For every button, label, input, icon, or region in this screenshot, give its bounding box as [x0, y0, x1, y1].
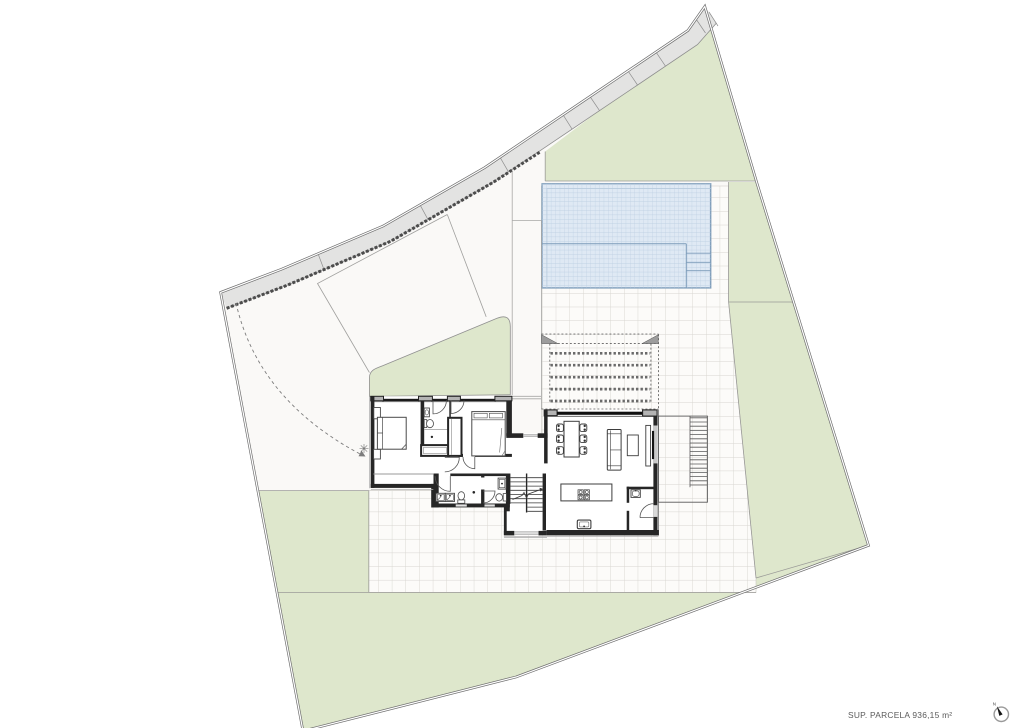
svg-text:SUP. PARCELA 936,15 m²: SUP. PARCELA 936,15 m²: [848, 710, 952, 720]
svg-text:N: N: [993, 702, 996, 707]
